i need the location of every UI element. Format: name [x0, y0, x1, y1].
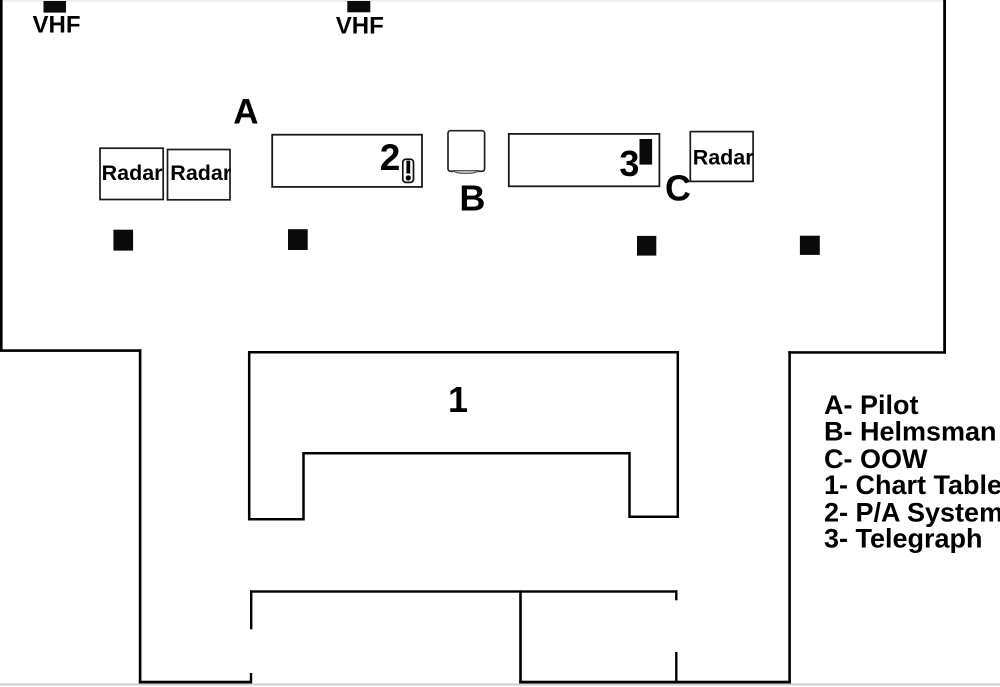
svg-text:3: 3: [619, 143, 639, 184]
svg-text:C: C: [665, 168, 691, 209]
svg-text:VHF: VHF: [33, 12, 81, 39]
svg-text:3- Telegraph: 3- Telegraph: [824, 524, 983, 554]
svg-text:1- Chart Table: 1- Chart Table: [824, 470, 1000, 500]
svg-text:Radar: Radar: [102, 161, 164, 185]
svg-text:A: A: [233, 92, 258, 131]
svg-text:2: 2: [380, 137, 401, 178]
svg-text:Radar: Radar: [170, 161, 232, 185]
svg-text:B: B: [459, 177, 485, 218]
svg-text:1: 1: [448, 379, 468, 420]
svg-text:Radar: Radar: [693, 145, 755, 169]
svg-text:B- Helmsman: B- Helmsman: [824, 416, 997, 446]
svg-text:VHF: VHF: [336, 13, 384, 40]
